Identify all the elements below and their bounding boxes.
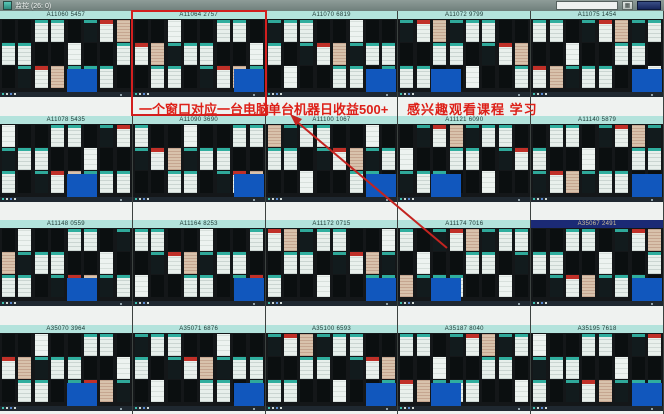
phone-thumb: [382, 334, 395, 356]
phone-thumb: [117, 334, 130, 356]
phone-thumb: [417, 66, 430, 88]
monitor-panel[interactable]: A35187 8040: [398, 325, 531, 414]
phone-thumb: [648, 148, 661, 170]
phone-thumb: [18, 252, 31, 274]
phone-thumb: [417, 171, 430, 193]
phone-thumb: [184, 125, 197, 147]
phone-thumb: [632, 20, 645, 42]
phone-thumb: [250, 229, 263, 251]
phone-thumb: [533, 171, 546, 193]
phone-thumb: [184, 252, 197, 274]
panel-bottom-strip: [531, 202, 663, 221]
phone-thumb: [168, 20, 181, 42]
phone-thumb: [599, 334, 612, 356]
phone-thumb: [382, 148, 395, 170]
phone-thumb: [382, 43, 395, 65]
phone-thumb: [382, 125, 395, 147]
phone-thumb: [217, 66, 230, 88]
phone-thumb: [135, 229, 148, 251]
phone-thumb: [466, 275, 479, 297]
phone-thumb: [482, 252, 495, 274]
phone-thumb: [184, 66, 197, 88]
phone-thumb: [35, 20, 48, 42]
remote-desktop-thumbnail: [531, 333, 663, 406]
phone-thumb: [284, 357, 297, 379]
phone-thumb: [599, 148, 612, 170]
phone-thumb: [2, 334, 15, 356]
panel-title: A11100 1067: [266, 116, 398, 124]
phone-thumb: [84, 43, 97, 65]
phone-thumb: [250, 125, 263, 147]
phone-thumb: [300, 20, 313, 42]
desktop-blue-area: [431, 69, 461, 92]
remote-desktop-thumbnail: [0, 124, 132, 197]
phone-thumb: [400, 275, 413, 297]
phone-thumb: [515, 171, 528, 193]
monitor-panel[interactable]: A11070 6819: [266, 11, 399, 116]
panel-bottom-strip: [266, 202, 398, 221]
phone-thumb: [18, 275, 31, 297]
phone-thumb: [400, 20, 413, 42]
phone-thumb: [51, 252, 64, 274]
phone-thumb: [433, 229, 446, 251]
phone-thumb: [566, 148, 579, 170]
grid-view-icon[interactable]: ▦: [622, 1, 633, 10]
mini-taskbar: [133, 301, 265, 306]
phone-thumb: [317, 334, 330, 356]
phone-thumb: [217, 148, 230, 170]
phone-thumb: [466, 229, 479, 251]
remote-desktop-thumbnail: [398, 124, 530, 197]
phone-thumb: [117, 357, 130, 379]
monitor-panel[interactable]: A11164 8253: [133, 220, 266, 325]
monitor-panel[interactable]: A11174 7016: [398, 220, 531, 325]
phone-thumb: [233, 148, 246, 170]
monitor-panel[interactable]: A11064 2757: [133, 11, 266, 116]
phone-thumb: [466, 334, 479, 356]
phone-thumb: [433, 125, 446, 147]
phone-thumb: [550, 334, 563, 356]
phone-thumb: [100, 43, 113, 65]
mini-taskbar: [398, 92, 530, 97]
phone-thumb: [400, 252, 413, 274]
phone-thumb: [117, 275, 130, 297]
phone-thumb: [284, 380, 297, 402]
phone-thumb: [615, 148, 628, 170]
phone-thumb: [217, 229, 230, 251]
phone-thumb: [51, 66, 64, 88]
phone-thumb: [51, 334, 64, 356]
mini-taskbar: [531, 92, 663, 97]
remote-desktop-thumbnail: [398, 19, 530, 92]
phone-thumb: [100, 20, 113, 42]
phone-thumb: [151, 380, 164, 402]
phone-thumb: [533, 334, 546, 356]
mini-taskbar: [266, 406, 398, 411]
phone-thumb: [35, 148, 48, 170]
phone-thumb: [366, 229, 379, 251]
phone-thumb: [217, 252, 230, 274]
desktop-blue-area: [431, 174, 461, 197]
panel-bottom-strip: [266, 306, 398, 325]
phone-thumb: [417, 334, 430, 356]
phone-thumb: [68, 357, 81, 379]
monitor-panel[interactable]: A11078 5435: [0, 116, 133, 221]
phone-thumb: [533, 357, 546, 379]
phone-thumb: [350, 148, 363, 170]
phone-thumb: [268, 380, 281, 402]
phone-thumb: [250, 20, 263, 42]
monitor-panel[interactable]: A11121 6090: [398, 116, 531, 221]
phone-thumb: [200, 20, 213, 42]
desktop-blue-area: [431, 278, 461, 301]
phone-thumb: [233, 357, 246, 379]
phone-thumb: [151, 125, 164, 147]
phone-thumb: [333, 171, 346, 193]
phone-thumb: [317, 125, 330, 147]
desktop-blue-area: [366, 174, 396, 197]
panel-title: A11072 9799: [398, 11, 530, 19]
phone-thumb: [300, 125, 313, 147]
phone-thumb: [18, 229, 31, 251]
phone-thumb: [184, 148, 197, 170]
phone-thumb: [515, 20, 528, 42]
phone-thumb: [599, 229, 612, 251]
desktop-blue-area: [67, 383, 97, 406]
remote-desktop-thumbnail: [0, 19, 132, 92]
panel-title: A35067 2491: [531, 220, 663, 228]
phone-thumb: [615, 43, 628, 65]
phone-thumb: [550, 66, 563, 88]
monitor-panel[interactable]: A11172 0715: [266, 220, 399, 325]
phone-thumb: [450, 20, 463, 42]
phone-thumb: [482, 334, 495, 356]
mini-taskbar: [0, 301, 132, 306]
phone-thumb: [417, 252, 430, 274]
phone-thumb: [350, 380, 363, 402]
phone-thumb: [550, 125, 563, 147]
remote-desktop-thumbnail: [531, 228, 663, 301]
panel-title: A11075 1454: [531, 11, 663, 19]
phone-thumb: [499, 171, 512, 193]
phone-thumb: [2, 171, 15, 193]
phone-thumb: [482, 275, 495, 297]
phone-thumb: [233, 334, 246, 356]
phone-thumb: [450, 357, 463, 379]
mini-taskbar: [266, 301, 398, 306]
phone-thumb: [333, 380, 346, 402]
phone-thumb: [135, 252, 148, 274]
phone-thumb: [84, 20, 97, 42]
phone-thumb: [533, 275, 546, 297]
phone-thumb: [582, 20, 595, 42]
monitor-panel[interactable]: A11060 5457: [0, 11, 133, 116]
phone-thumb: [217, 125, 230, 147]
phone-thumb: [317, 171, 330, 193]
phone-thumb: [400, 171, 413, 193]
monitor-panel[interactable]: A35067 2491: [531, 220, 664, 325]
phone-thumb: [51, 275, 64, 297]
phone-thumb: [499, 20, 512, 42]
phone-thumb: [84, 229, 97, 251]
panel-title: A35187 8040: [398, 325, 530, 333]
mini-taskbar: [0, 406, 132, 411]
phone-thumb: [135, 357, 148, 379]
phone-thumb: [100, 334, 113, 356]
phone-thumb: [366, 334, 379, 356]
phone-thumb: [366, 43, 379, 65]
phone-thumb: [217, 275, 230, 297]
phone-thumb: [200, 252, 213, 274]
phone-thumb: [2, 66, 15, 88]
phone-thumb: [400, 229, 413, 251]
phone-thumb: [84, 125, 97, 147]
phone-thumb: [35, 229, 48, 251]
phone-thumb: [51, 380, 64, 402]
monitor-panel[interactable]: A11148 0559: [0, 220, 133, 325]
phone-thumb: [18, 171, 31, 193]
phone-thumb: [100, 66, 113, 88]
phone-thumb: [515, 43, 528, 65]
app-icon: [3, 1, 12, 10]
phone-thumb: [100, 380, 113, 402]
desktop-blue-area: [67, 174, 97, 197]
phone-thumb: [84, 334, 97, 356]
phone-thumb: [648, 20, 661, 42]
phone-thumb: [268, 66, 281, 88]
phone-thumb: [482, 171, 495, 193]
panel-bottom-strip: [0, 306, 132, 325]
phone-thumb: [217, 20, 230, 42]
phone-thumb: [648, 252, 661, 274]
phone-thumb: [268, 125, 281, 147]
phone-thumb: [268, 252, 281, 274]
phone-thumb: [599, 252, 612, 274]
phone-thumb: [2, 275, 15, 297]
phone-thumb: [582, 252, 595, 274]
phone-thumb: [135, 334, 148, 356]
phone-thumb: [550, 43, 563, 65]
phone-thumb: [68, 334, 81, 356]
phone-thumb: [317, 66, 330, 88]
phone-thumb: [51, 43, 64, 65]
phone-thumb: [566, 43, 579, 65]
phone-thumb: [566, 380, 579, 402]
phone-thumb: [599, 357, 612, 379]
phone-thumb: [499, 334, 512, 356]
phone-thumb: [400, 148, 413, 170]
phone-thumb: [84, 148, 97, 170]
monitor-panel[interactable]: A11072 9799: [398, 11, 531, 116]
phone-thumb: [615, 357, 628, 379]
phone-thumb: [550, 275, 563, 297]
phone-thumb: [482, 229, 495, 251]
phone-thumb: [533, 66, 546, 88]
phone-thumb: [466, 380, 479, 402]
remote-desktop-thumbnail: [0, 228, 132, 301]
phone-thumb: [450, 334, 463, 356]
desktop-blue-area: [431, 383, 461, 406]
monitor-panel[interactable]: A11140 5879: [531, 116, 664, 221]
phone-thumb: [117, 252, 130, 274]
phone-thumb: [382, 20, 395, 42]
phone-thumb: [268, 357, 281, 379]
monitor-panel[interactable]: A11100 1067: [266, 116, 399, 221]
phone-thumb: [200, 334, 213, 356]
phone-thumb: [84, 252, 97, 274]
remote-desktop-thumbnail: [133, 333, 265, 406]
phone-thumb: [582, 171, 595, 193]
phone-thumb: [366, 357, 379, 379]
phone-thumb: [68, 148, 81, 170]
phone-thumb: [233, 20, 246, 42]
panel-title: A35195 7618: [531, 325, 663, 333]
phone-thumb: [433, 43, 446, 65]
phone-thumb: [333, 252, 346, 274]
phone-thumb: [615, 380, 628, 402]
phone-thumb: [366, 125, 379, 147]
phone-thumb: [515, 357, 528, 379]
phone-thumb: [284, 275, 297, 297]
phone-thumb: [550, 171, 563, 193]
phone-thumb: [615, 66, 628, 88]
phone-thumb: [317, 275, 330, 297]
panel-title: A11090 3690: [133, 116, 265, 124]
mini-taskbar: [0, 92, 132, 97]
phone-thumb: [250, 334, 263, 356]
phone-thumb: [482, 20, 495, 42]
phone-thumb: [284, 334, 297, 356]
phone-thumb: [151, 171, 164, 193]
phone-thumb: [433, 357, 446, 379]
phone-thumb: [533, 43, 546, 65]
monitor-panel[interactable]: A35071 6876: [133, 325, 266, 414]
phone-thumb: [168, 66, 181, 88]
phone-thumb: [233, 125, 246, 147]
search-input[interactable]: [556, 1, 618, 10]
monitor-panel[interactable]: A35100 6593: [266, 325, 399, 414]
phone-thumb: [615, 20, 628, 42]
phone-thumb: [268, 171, 281, 193]
phone-thumb: [68, 125, 81, 147]
phone-thumb: [450, 252, 463, 274]
phone-thumb: [100, 229, 113, 251]
phone-thumb: [615, 334, 628, 356]
phone-thumb: [35, 171, 48, 193]
phone-thumb: [317, 229, 330, 251]
phone-thumb: [300, 148, 313, 170]
monitor-panel[interactable]: A35195 7618: [531, 325, 664, 414]
phone-thumb: [35, 66, 48, 88]
phone-thumb: [599, 171, 612, 193]
phone-thumb: [268, 275, 281, 297]
phone-thumb: [84, 357, 97, 379]
phone-thumb: [599, 43, 612, 65]
panel-bottom-strip: [266, 97, 398, 116]
phone-thumb: [284, 252, 297, 274]
desktop-blue-area: [632, 383, 662, 406]
phone-thumb: [51, 20, 64, 42]
phone-thumb: [615, 229, 628, 251]
phone-thumb: [599, 66, 612, 88]
phone-thumb: [68, 20, 81, 42]
panel-title: A35100 6593: [266, 325, 398, 333]
remote-desktop-thumbnail: [531, 19, 663, 92]
phone-thumb: [333, 20, 346, 42]
phone-thumb: [550, 20, 563, 42]
phone-thumb: [151, 252, 164, 274]
phone-thumb: [18, 43, 31, 65]
panel-bottom-strip: [0, 202, 132, 221]
phone-thumb: [350, 20, 363, 42]
desktop-blue-area: [366, 69, 396, 92]
mini-taskbar: [531, 197, 663, 202]
phone-thumb: [100, 252, 113, 274]
phone-thumb: [350, 43, 363, 65]
mini-taskbar: [531, 301, 663, 306]
phone-thumb: [566, 357, 579, 379]
phone-thumb: [51, 148, 64, 170]
phone-thumb: [466, 252, 479, 274]
phone-thumb: [100, 125, 113, 147]
panel-bottom-strip: [398, 306, 530, 325]
phone-thumb: [566, 229, 579, 251]
phone-thumb: [135, 275, 148, 297]
mini-taskbar: [0, 197, 132, 202]
phone-thumb: [68, 43, 81, 65]
phone-thumb: [566, 275, 579, 297]
phone-thumb: [632, 357, 645, 379]
phone-thumb: [450, 229, 463, 251]
primary-action-button[interactable]: [637, 1, 661, 10]
phone-thumb: [151, 148, 164, 170]
phone-thumb: [200, 171, 213, 193]
phone-thumb: [217, 357, 230, 379]
phone-thumb: [151, 357, 164, 379]
phone-thumb: [333, 66, 346, 88]
phone-thumb: [317, 357, 330, 379]
panel-title: A11174 7016: [398, 220, 530, 228]
phone-thumb: [400, 357, 413, 379]
phone-thumb: [482, 125, 495, 147]
phone-thumb: [582, 43, 595, 65]
monitor-panel[interactable]: A11090 3690: [133, 116, 266, 221]
phone-thumb: [2, 148, 15, 170]
phone-thumb: [582, 380, 595, 402]
phone-thumb: [100, 275, 113, 297]
phone-thumb: [284, 171, 297, 193]
phone-thumb: [515, 380, 528, 402]
phone-thumb: [450, 43, 463, 65]
phone-thumb: [317, 20, 330, 42]
phone-thumb: [135, 148, 148, 170]
phone-thumb: [582, 334, 595, 356]
phone-thumb: [350, 252, 363, 274]
phone-thumb: [350, 229, 363, 251]
monitor-panel[interactable]: A11075 1454: [531, 11, 664, 116]
phone-thumb: [333, 43, 346, 65]
phone-thumb: [168, 125, 181, 147]
phone-thumb: [168, 171, 181, 193]
panel-title: A11172 0715: [266, 220, 398, 228]
monitor-panel[interactable]: A35070 3964: [0, 325, 133, 414]
desktop-blue-area: [632, 278, 662, 301]
phone-thumb: [648, 125, 661, 147]
phone-thumb: [533, 252, 546, 274]
phone-thumb: [499, 357, 512, 379]
phone-thumb: [151, 43, 164, 65]
mini-taskbar: [398, 301, 530, 306]
